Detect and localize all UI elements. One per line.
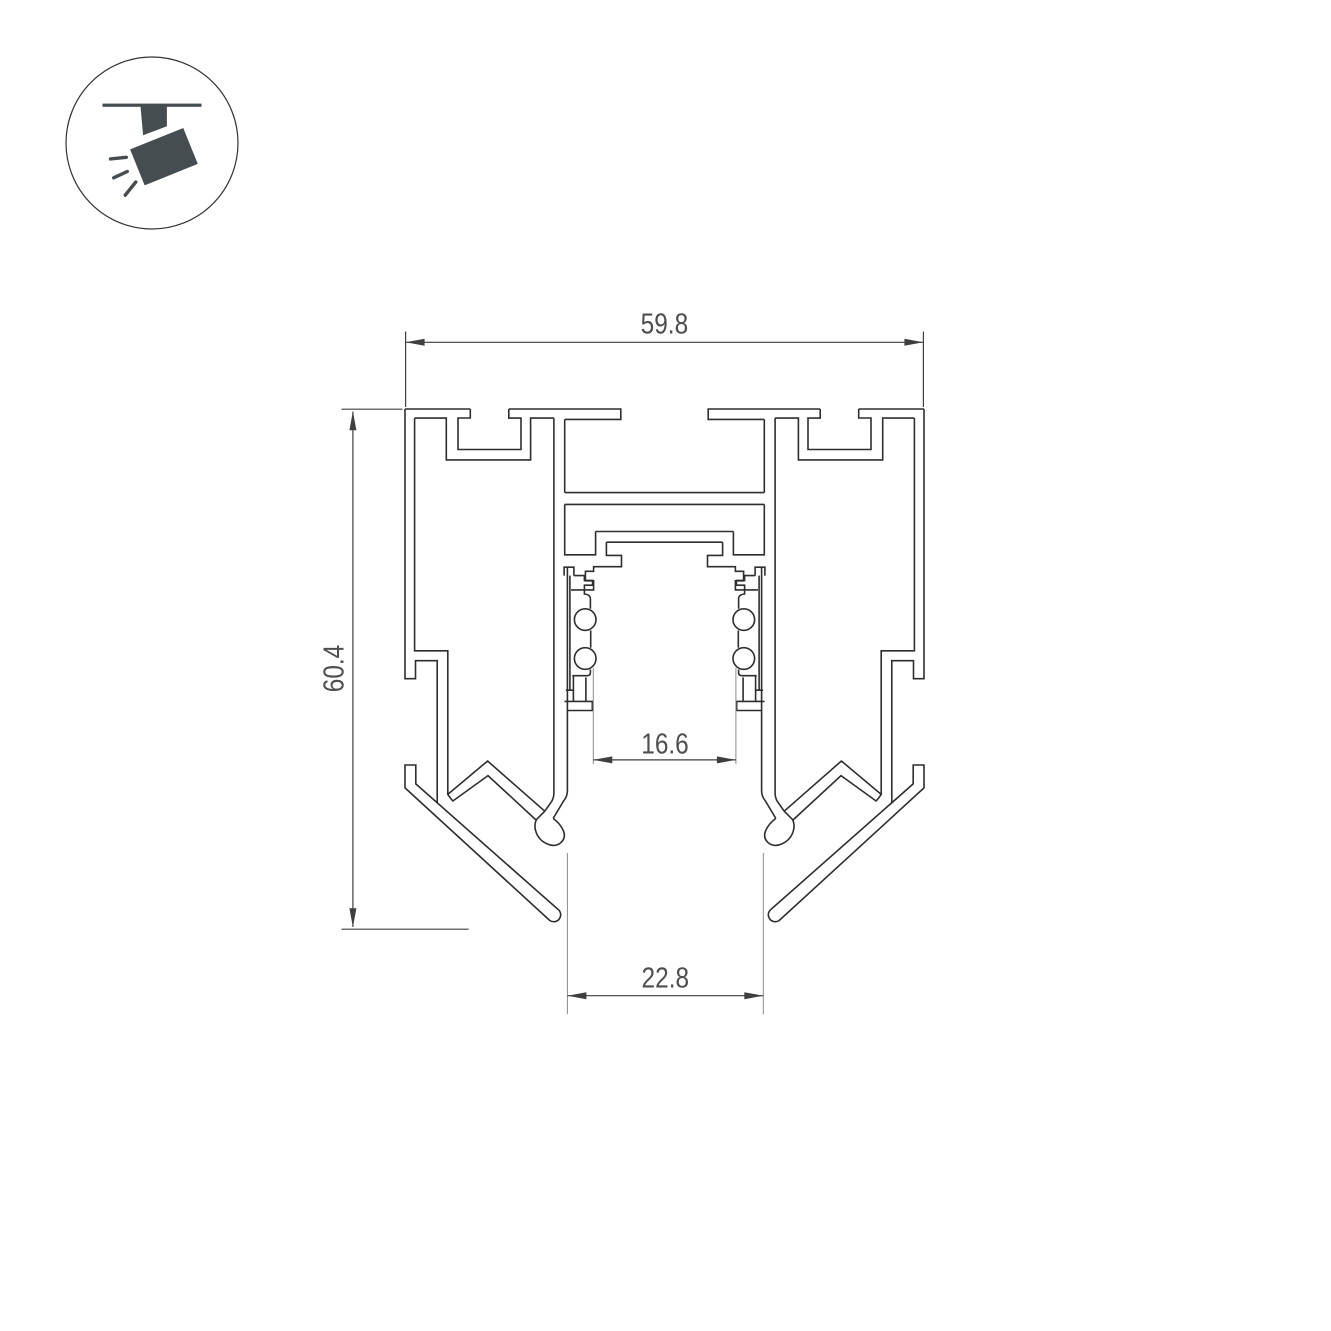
svg-text:59.8: 59.8: [641, 309, 689, 341]
svg-text:16.6: 16.6: [641, 729, 689, 761]
svg-text:22.8: 22.8: [642, 962, 690, 994]
svg-text:60.4: 60.4: [318, 645, 350, 693]
